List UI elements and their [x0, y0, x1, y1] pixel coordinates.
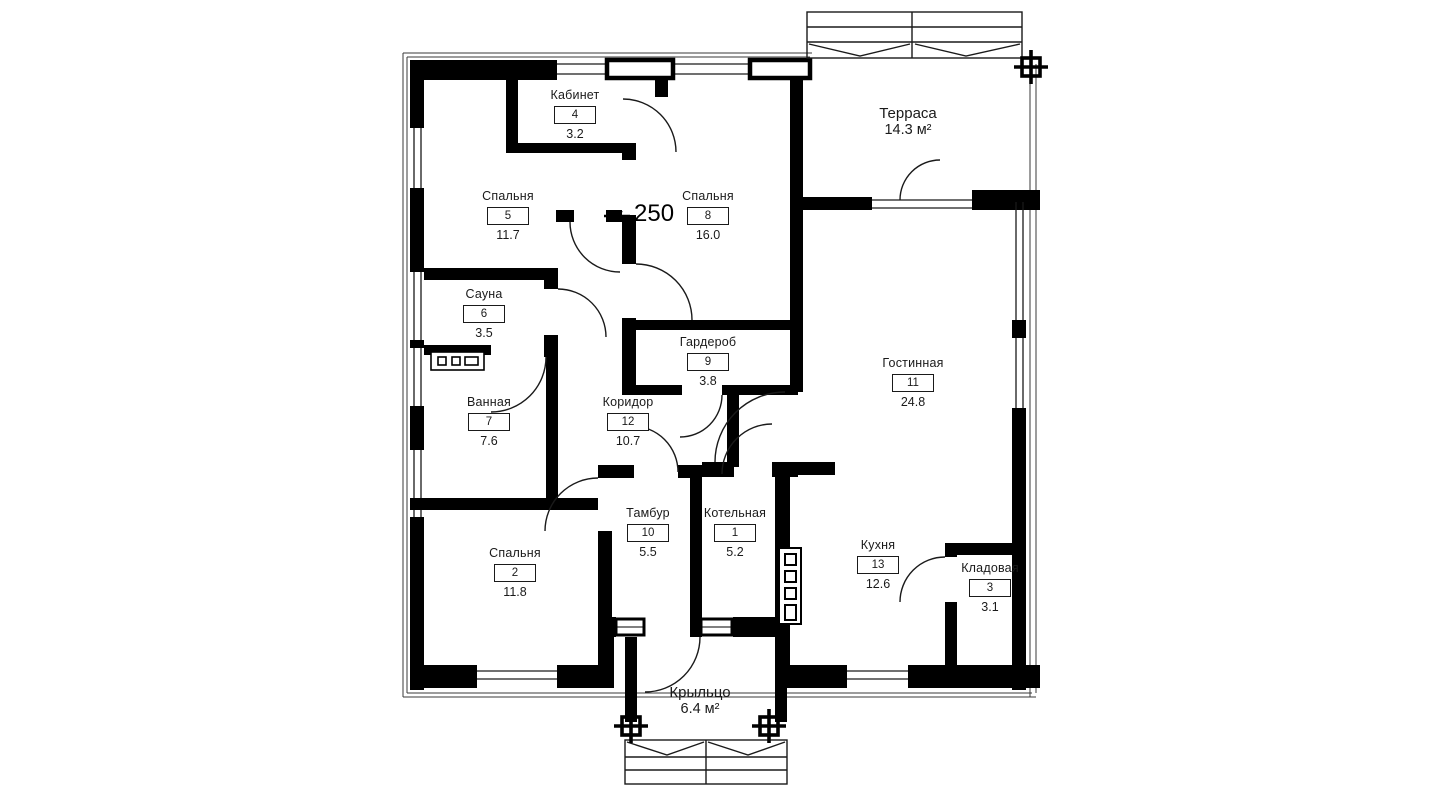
room-number-badge: 2 [494, 564, 536, 582]
room-name: Гардероб [648, 335, 768, 349]
room-label-kuhnya: Кухня 13 12.6 [818, 538, 938, 591]
room-area: 3.2 [515, 127, 635, 141]
room-number-badge: 12 [607, 413, 649, 431]
room-number-badge: 13 [857, 556, 899, 574]
room-label-sauna: Сауна 6 3.5 [424, 287, 544, 340]
room-name: Кладовая [930, 561, 1050, 575]
room-area: 7.6 [429, 434, 549, 448]
room-area: 11.7 [448, 228, 568, 242]
porch-label: Крыльцо 6.4 м² [620, 684, 780, 718]
terrace-label: Терраса 14.3 м² [828, 105, 988, 139]
room-area: 12.6 [818, 577, 938, 591]
room-name: Коридор [568, 395, 688, 409]
room-name: Кухня [818, 538, 938, 552]
room-area: 3.5 [424, 326, 544, 340]
room-area: 16.0 [648, 228, 768, 242]
flue-blocks-icon [779, 548, 801, 624]
room-number-badge: 10 [627, 524, 669, 542]
room-name: Гостинная [853, 356, 973, 370]
room-label-koridor: Коридор 12 10.7 [568, 395, 688, 448]
washstand-icon [431, 352, 484, 370]
wall-dimension-label: 250 [634, 200, 674, 228]
porch-area: 6.4 м² [620, 701, 780, 718]
room-name: Котельная [675, 506, 795, 520]
room-area: 24.8 [853, 395, 973, 409]
room-area: 5.2 [675, 545, 795, 559]
porch-name: Крыльцо [620, 684, 780, 701]
terrace-area: 14.3 м² [828, 122, 988, 139]
room-number-badge: 1 [714, 524, 756, 542]
room-area: 11.8 [455, 585, 575, 599]
room-number-badge: 8 [687, 207, 729, 225]
entry-sidelights [616, 619, 732, 635]
room-label-spalnya-2: Спальня 2 11.8 [455, 546, 575, 599]
porch-steps [625, 740, 787, 784]
room-label-spalnya-5: Спальня 5 11.7 [448, 189, 568, 242]
room-label-garderob: Гардероб 9 3.8 [648, 335, 768, 388]
floor-plan-page: Кабинет 4 3.2 Спальня 5 11.7 Спальня 8 1… [0, 0, 1440, 810]
room-label-kotelnaya: Котельная 1 5.2 [675, 506, 795, 559]
room-label-kabinet: Кабинет 4 3.2 [515, 88, 635, 141]
room-name: Кабинет [515, 88, 635, 102]
room-number-badge: 9 [687, 353, 729, 371]
room-label-vannaya: Ванная 7 7.6 [429, 395, 549, 448]
room-name: Ванная [429, 395, 549, 409]
room-number-badge: 6 [463, 305, 505, 323]
room-label-kladovaya: Кладовая 3 3.1 [930, 561, 1050, 614]
terrace-steps [807, 12, 1022, 58]
room-number-badge: 5 [487, 207, 529, 225]
room-area: 10.7 [568, 434, 688, 448]
room-area: 3.1 [930, 600, 1050, 614]
room-name: Спальня [455, 546, 575, 560]
room-name: Сауна [424, 287, 544, 301]
room-number-badge: 7 [468, 413, 510, 431]
room-number-badge: 11 [892, 374, 934, 392]
room-number-badge: 4 [554, 106, 596, 124]
room-name: Спальня [448, 189, 568, 203]
terrace-name: Терраса [828, 105, 988, 122]
room-area: 3.8 [648, 374, 768, 388]
room-number-badge: 3 [969, 579, 1011, 597]
boxed-windows [607, 60, 810, 78]
room-label-gostinaya: Гостинная 11 24.8 [853, 356, 973, 409]
